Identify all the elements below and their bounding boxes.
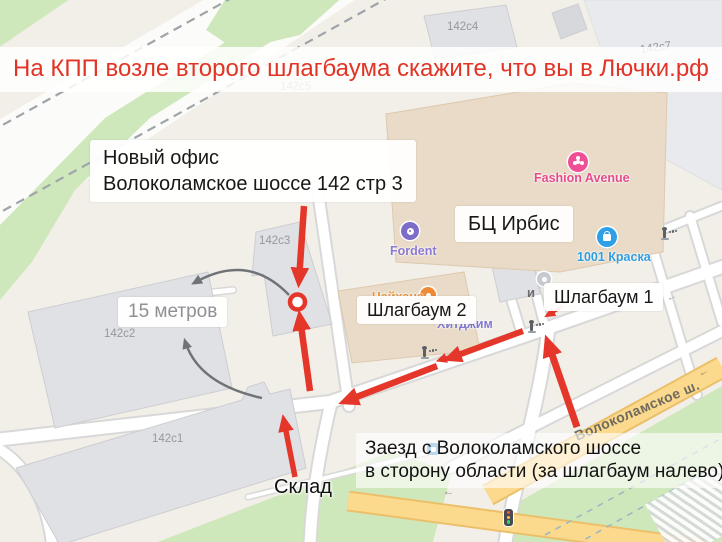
barrier2-callout: Шлагбаум 2 [357, 296, 476, 324]
warehouse-label: Склад [274, 476, 332, 499]
poi-label-fordent: Fordent [390, 244, 437, 258]
office-callout-line1: Новый офис [103, 145, 403, 171]
instruction-banner: На КПП возле второго шлагбаума скажите, … [0, 47, 722, 92]
entry-note: Заезд с Волоколамского шоссе в сторону о… [356, 433, 722, 488]
barrier-icon-1 [528, 320, 545, 334]
poi-label-1001-kraska: 1001 Краска [577, 250, 651, 264]
barrier1-callout: Шлагбаум 1 [544, 283, 663, 311]
building-142c2 [28, 272, 232, 428]
entry-note-line1: Заезд с Волоколамского шоссе [365, 437, 722, 460]
office-callout: Новый офис Волоколамское шоссе 142 стр 3 [90, 140, 416, 202]
building-label-142c3: 142с3 [259, 235, 290, 247]
map-canvas: 142с4 142с7 142с5 142с3 142с2 142с1 Воло… [0, 0, 722, 542]
business-center-callout: БЦ Ирбис [455, 206, 573, 242]
instruction-banner-text: На КПП возле второго шлагбаума скажите, … [13, 55, 709, 83]
office-callout-line2: Волоколамское шоссе 142 стр 3 [103, 171, 403, 197]
fashion-avenue-icon [568, 152, 588, 172]
distance-callout: 15 метров [118, 297, 227, 327]
poi-label-fashion-avenue: Fashion Avenue [534, 171, 630, 185]
building-label-142c1: 142с1 [152, 433, 183, 445]
traffic-light-icon [504, 509, 513, 526]
map-label-fragment: и [527, 285, 535, 300]
barrier-icon-3 [661, 227, 678, 241]
building-label-142c2: 142с2 [104, 328, 135, 340]
barrier-icon-2 [421, 346, 438, 360]
building-label-142c4: 142с4 [447, 21, 478, 33]
kraska-icon [597, 227, 617, 247]
fordent-icon [401, 222, 419, 240]
entry-note-line2: в сторону области (за шлагбаум налево) [365, 460, 722, 483]
